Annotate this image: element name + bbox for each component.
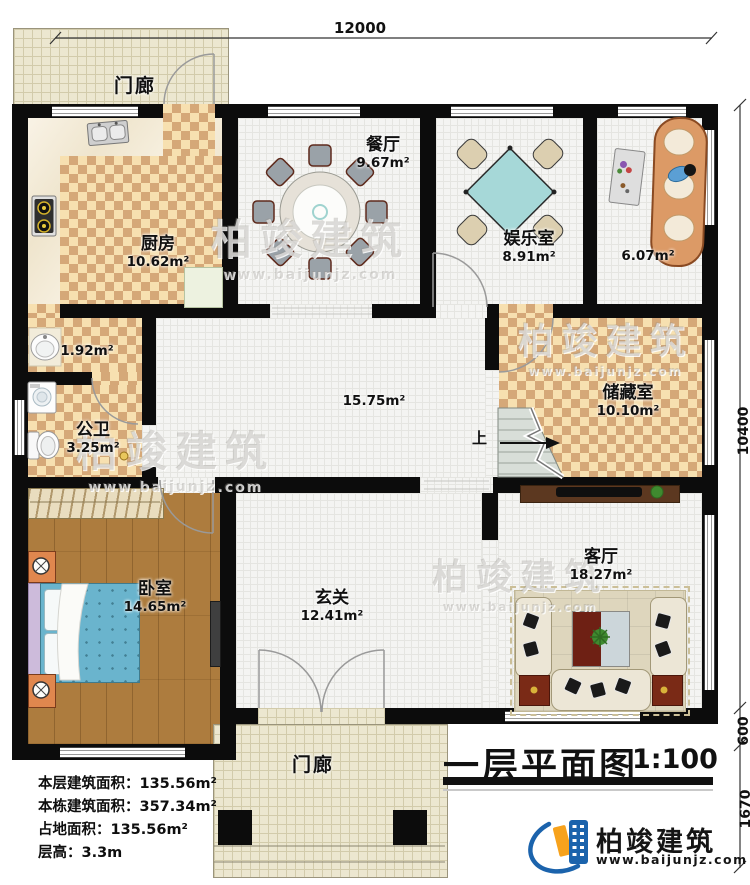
storage-door-gap [499,304,553,318]
foyer-living-opening [482,540,498,708]
coffee-table [572,611,630,667]
info-floor-area: 本层建筑面积：135.56m² [38,772,217,793]
kitchen-entry-floor [163,104,215,156]
wall-kitchen-dining [222,104,238,318]
dining-opening [270,304,372,318]
wall-mid-seg1 [60,304,270,318]
sofa-right-unit [650,597,687,677]
label-bathroom: 公卫3.25m² [23,421,163,456]
sofa-bottom-unit [551,669,651,711]
kitchen-closet-opening [28,304,60,318]
bathroom-door-gap [92,372,142,385]
wall-recreation-lounge [583,104,597,304]
label-dining: 餐厅9.67m² [313,136,453,171]
wall-mid-seg2 [372,304,433,318]
info-footprint-area: 占地面积：135.56m² [38,818,188,839]
label-hall: 15.75m² [304,394,444,410]
wardrobe [28,488,164,519]
recreation-door-gap [433,304,487,318]
dim-right-porch: 1670 [738,779,750,839]
label-foyer: 玄关12.41m² [262,589,402,624]
recreation-floor [436,118,583,304]
entry-door-gap [258,708,385,724]
wall-mid-seg3 [553,304,702,318]
info-building-area: 本栋建筑面积：357.34m² [38,795,217,816]
label-bedroom: 卧室14.65m² [85,580,225,615]
label-storage: 储藏室10.10m² [558,384,698,419]
wall-bedroom-foyer [220,477,236,760]
label-porch-bottom: 门廊 [243,755,383,777]
bedroom-door-gap [158,477,215,493]
wall-foyer-bottom-left [236,708,258,724]
label-lounge: 6.07m² [578,249,718,265]
window-kitchen-top [52,106,138,117]
wall-hall-storage [485,318,499,370]
brand-url: www.baijunjz.com [596,852,748,867]
label-porch-top: 门廊 [65,76,205,98]
dim-right-main: 10400 [736,401,750,461]
hall-foyer-passage [420,477,493,493]
window-lounge-top [618,106,686,117]
wall-bath-hall-upper [142,318,156,425]
window-living-bottom [505,711,640,722]
window-lounge-right [704,130,715,225]
title-underline-thin [443,789,713,791]
window-living-right [704,515,715,690]
fridge [184,267,223,308]
sofa-left-unit [515,597,552,677]
stairs-up-label: 上 [472,427,487,448]
wall-lower-seg2 [215,477,420,493]
info-floor-height: 层高：3.3m [38,841,122,862]
window-recreation-top [451,106,553,117]
stair-access [485,370,499,477]
title-underline-thick [443,777,713,785]
porch-bottom-floor [213,724,448,878]
label-kitchen: 厨房10.62m² [88,235,228,270]
side-table-right [652,675,683,706]
living-tv [556,487,642,497]
wall-bath-hall-lower [142,467,156,477]
side-table-left [519,675,550,706]
bed-pillow-bottom [44,633,68,675]
nightstand-top [28,551,56,583]
window-bedroom-bottom [60,747,185,758]
porch-column-right [393,810,427,845]
dim-top: 12000 [325,19,395,37]
lounge-floor [597,118,702,304]
label-closet: 1.92m² [17,344,157,360]
brand-logo-icon [530,820,588,871]
bed-pillow-top [44,589,68,631]
label-living: 客厅18.27m² [531,548,671,583]
window-storage-right [704,340,715,465]
dim-right-mid: 600 [736,701,750,761]
window-dining-top [268,106,360,117]
wall-mid-nib [487,304,499,318]
nightstand-bottom [28,674,56,708]
page-scale: 1:100 [632,744,718,775]
wall-closet-bath [28,372,92,385]
wall-foyer-living [482,493,498,540]
porch-column-left [218,810,252,845]
